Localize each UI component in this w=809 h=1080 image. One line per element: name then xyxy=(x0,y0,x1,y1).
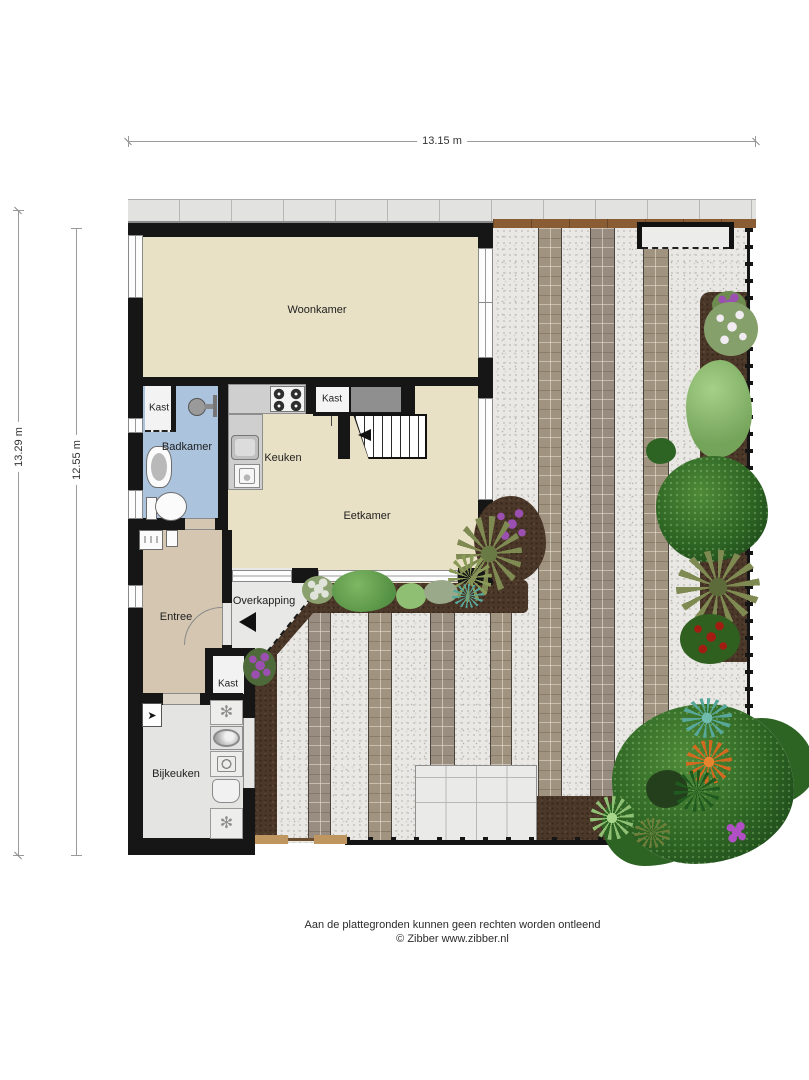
window xyxy=(232,570,292,582)
front-door-opening xyxy=(222,603,232,645)
garden-gate xyxy=(255,835,347,844)
interior-wall-bathroom-right xyxy=(218,383,228,530)
footer: Aan de plattegronden kunnen geen rechten… xyxy=(96,918,809,946)
dimension-cap xyxy=(128,136,129,147)
floorplan-canvas: 13.15 m 13.29 m 12.55 m xyxy=(0,0,809,1080)
red-flower-bush xyxy=(680,614,740,664)
storage-niche xyxy=(637,222,734,249)
washing-machine-icon xyxy=(210,726,243,750)
utility-door-opening xyxy=(243,718,255,788)
dimension-cap xyxy=(71,855,82,856)
dimension-line-left-outer xyxy=(18,210,19,856)
brick-path xyxy=(590,228,615,840)
interior-wall-utility-right xyxy=(243,705,255,718)
dimension-label-width: 13.15 m xyxy=(417,135,467,147)
room-label-keuken: Keuken xyxy=(264,452,301,464)
dimension-label-height-inner: 12.55 m xyxy=(71,435,83,485)
dimension-cap xyxy=(755,136,756,147)
ornamental-grass xyxy=(634,818,670,848)
teal-plant xyxy=(682,698,732,738)
dishwasher-icon xyxy=(234,464,260,488)
closet-door-line xyxy=(331,416,332,426)
tree xyxy=(656,456,768,562)
washbasin-bowl-icon xyxy=(151,453,167,481)
interior-wall-entree-right xyxy=(222,530,232,603)
exterior-wall-bottom xyxy=(128,838,255,855)
laundry-basket-icon xyxy=(212,779,240,803)
snowflake-glyph: ✻ xyxy=(220,816,233,832)
meter-box xyxy=(166,530,178,547)
shower-bracket-icon xyxy=(213,395,217,417)
utility-interior-door-opening xyxy=(163,693,200,705)
vent-glyph: ➤ xyxy=(147,709,156,722)
bathroom-door-opening xyxy=(185,518,215,530)
shower-icon xyxy=(188,398,206,416)
window xyxy=(478,248,493,358)
freezer-icon: ✻ xyxy=(210,808,243,839)
room-label-kast-entree: Kast xyxy=(218,679,238,690)
interior-wall-stairs xyxy=(338,414,350,459)
room-label-woonkamer: Woonkamer xyxy=(287,304,346,316)
footer-disclaimer: Aan de plattegronden kunnen geen rechten… xyxy=(96,918,809,932)
stove-icon xyxy=(270,386,305,412)
room-label-bijkeuken: Bijkeuken xyxy=(152,768,200,780)
spiky-plant xyxy=(674,770,720,812)
shaft-box xyxy=(351,387,401,412)
window xyxy=(128,418,143,433)
room-label-entree: Entree xyxy=(160,611,192,623)
toilet-icon xyxy=(155,492,187,521)
entrance-arrow-icon xyxy=(239,612,256,632)
interior-wall-utility-right xyxy=(243,788,255,838)
interior-wall-bathroom-bottom xyxy=(215,518,228,530)
white-flower-cluster xyxy=(704,302,758,356)
exterior-wall-top xyxy=(128,223,493,237)
dimension-line-left-inner xyxy=(76,228,77,856)
purple-flower-cluster xyxy=(243,648,276,686)
white-flower-cluster xyxy=(302,576,334,604)
ornamental-grass xyxy=(676,550,760,624)
light-green-shrub xyxy=(396,583,426,609)
window xyxy=(478,398,493,500)
meter-box xyxy=(139,530,163,550)
window xyxy=(128,490,143,519)
window xyxy=(128,585,143,608)
freezer-icon: ✻ xyxy=(210,700,243,725)
dimension-label-height-outer: 13.29 m xyxy=(13,422,25,472)
teal-plant xyxy=(452,584,484,608)
stairs-direction-arrow-icon xyxy=(358,429,371,441)
dimension-cap xyxy=(71,228,82,229)
window-mullion xyxy=(478,302,493,303)
light-green-shrub xyxy=(686,360,752,458)
niche-dashed-edge xyxy=(642,247,729,249)
garden-shed xyxy=(415,765,537,842)
palm-plant xyxy=(590,796,634,840)
vent-icon: ➤ xyxy=(142,703,162,727)
snowflake-glyph: ✻ xyxy=(220,705,233,721)
brick-path xyxy=(368,612,392,840)
green-bush xyxy=(332,570,396,612)
room-label-kast-top: Kast xyxy=(149,403,169,414)
room-label-badkamer: Badkamer xyxy=(162,441,212,453)
window xyxy=(128,235,143,298)
brick-path xyxy=(308,612,331,840)
room-label-kast-mid: Kast xyxy=(322,394,342,405)
dryer-icon xyxy=(210,751,243,777)
room-label-overkapping: Overkapping xyxy=(233,595,295,607)
footer-copyright: © Zibber www.zibber.nl xyxy=(96,932,809,946)
kitchen-sink-basin-icon xyxy=(235,439,255,456)
room-label-eetkamer: Eetkamer xyxy=(343,510,390,522)
purple-flower-cluster xyxy=(722,820,750,846)
shrub xyxy=(646,438,676,464)
